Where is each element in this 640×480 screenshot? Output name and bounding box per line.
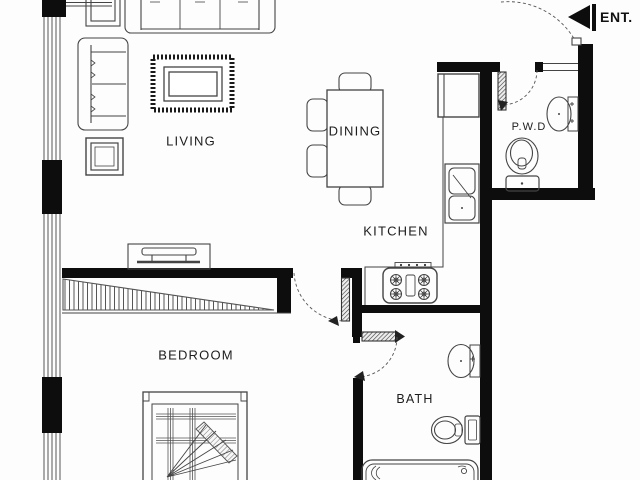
entrance-label: ENT.	[600, 9, 633, 25]
room-label-bedroom: BEDROOM	[158, 348, 234, 363]
rug-and-coffee-table	[153, 57, 232, 110]
kitchen-sink	[445, 164, 479, 223]
floor-plan: LIVING DINING KITCHEN P.W.D BEDROOM BATH…	[0, 0, 640, 480]
dining-set	[307, 73, 383, 205]
bathtub	[362, 460, 478, 480]
room-label-kitchen: KITCHEN	[363, 224, 428, 239]
side-table	[86, 138, 123, 175]
room-label-bath: BATH	[396, 392, 433, 406]
entrance-door	[501, 2, 581, 45]
refrigerator	[438, 74, 479, 117]
room-label-dining: DINING	[329, 124, 382, 139]
bed	[143, 392, 247, 480]
corner-table	[86, 0, 120, 26]
dining-chair	[307, 145, 328, 177]
dining-chair	[339, 185, 371, 205]
bath-toilet	[432, 416, 481, 444]
three-seat-sofa	[125, 0, 275, 33]
entrance-arrow-icon	[568, 4, 596, 31]
powder-room-door	[498, 70, 537, 111]
room-label-living: LIVING	[166, 134, 216, 149]
cooktop	[383, 263, 437, 304]
dining-chair	[307, 99, 328, 131]
thin-partition	[543, 64, 578, 71]
left-window-wall	[42, 0, 66, 480]
room-label-powder-room: P.W.D	[512, 121, 547, 133]
tv-console	[128, 244, 210, 269]
powder-toilet	[506, 138, 539, 191]
bath-door	[354, 330, 405, 381]
top-wall-fragment	[66, 3, 112, 7]
floor-plan-drawing	[0, 0, 640, 480]
bed-fold	[167, 422, 237, 477]
two-seat-sofa	[78, 38, 128, 130]
bedroom-door	[294, 273, 350, 326]
bath-basin	[448, 345, 480, 378]
powder-basin	[547, 97, 578, 131]
dining-table	[327, 90, 383, 187]
wardrobe	[62, 279, 291, 313]
